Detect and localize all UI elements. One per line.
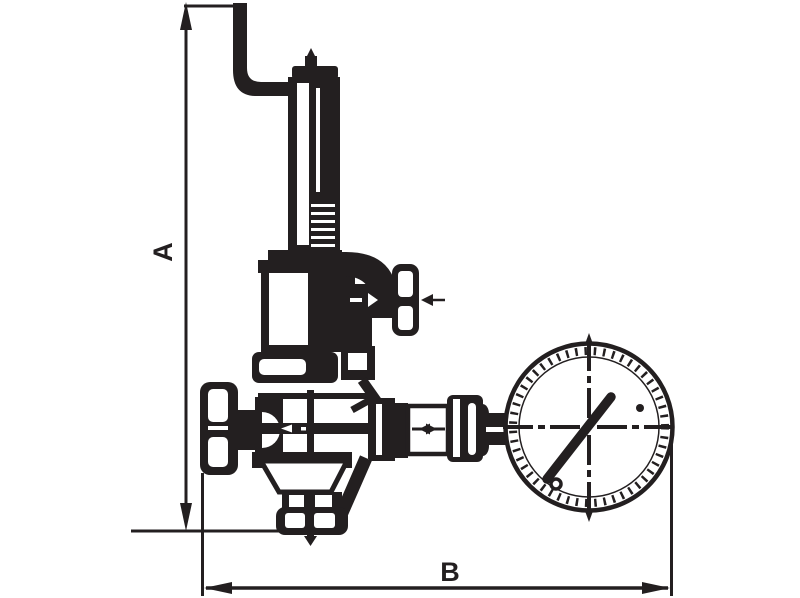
outlet-drop-pipe xyxy=(352,318,372,348)
arrow-right-icon xyxy=(642,582,670,594)
inlet-centerline-band xyxy=(256,423,378,434)
gauge-fitting xyxy=(352,395,506,462)
knob-shaft xyxy=(238,410,258,450)
arrow-down-icon xyxy=(180,503,192,531)
relief-valve-assembly xyxy=(200,3,678,546)
discharge-pipe xyxy=(233,3,296,96)
stem-cap xyxy=(292,48,338,79)
technical-drawing-canvas: A B xyxy=(0,0,800,598)
centerline-tip-icon xyxy=(585,333,593,344)
spring-bonnet xyxy=(261,264,355,352)
hand-knob xyxy=(200,382,258,475)
centerline-arrow-icon xyxy=(421,294,433,306)
arrow-left-icon xyxy=(204,582,232,594)
outlet-funnel xyxy=(261,461,347,492)
dimension-b-label: B xyxy=(440,557,460,587)
centerline-tip-icon xyxy=(304,536,317,546)
bonnet-flange xyxy=(252,352,338,383)
adjusting-stem xyxy=(288,77,340,255)
pressure-gauge xyxy=(503,333,678,522)
dimension-a-label: A xyxy=(148,242,178,262)
valve-dimensional-drawing: A B xyxy=(0,0,800,598)
gauge-needle-tail-ring xyxy=(551,479,561,489)
gauge-dial-dot xyxy=(636,404,644,412)
bottom-outlet xyxy=(261,458,366,535)
centerline-tip-icon xyxy=(585,511,593,522)
